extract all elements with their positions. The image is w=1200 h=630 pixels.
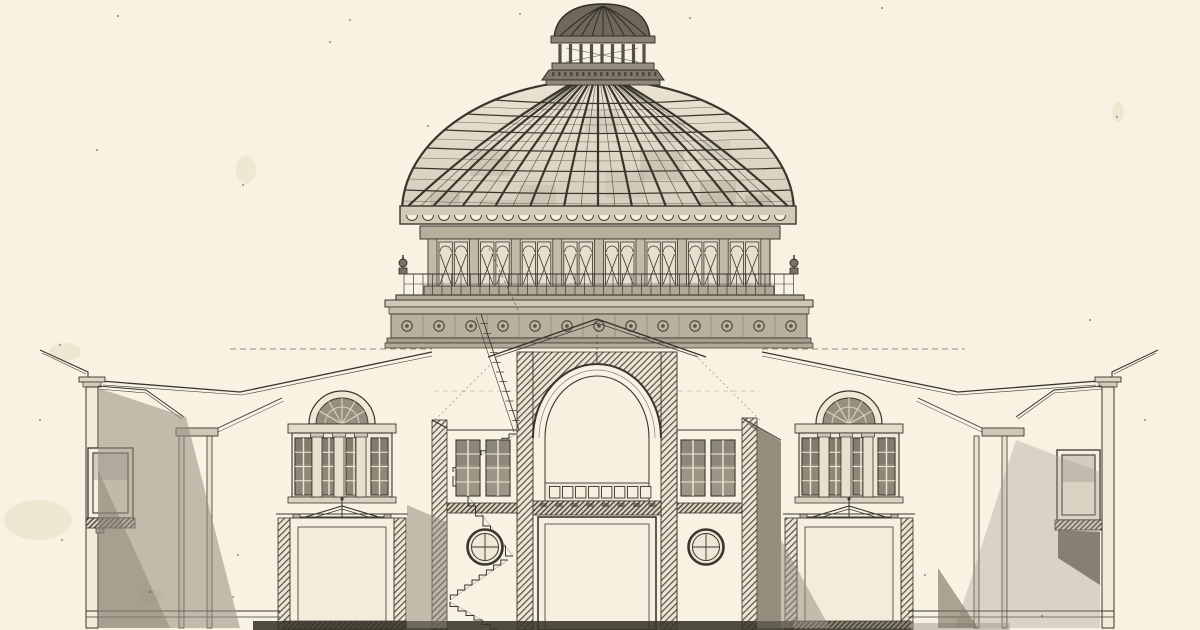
paper-speck <box>689 17 691 19</box>
paper-speck <box>1144 419 1146 421</box>
pilaster-capital <box>333 433 346 437</box>
drum-pilaster <box>470 239 479 291</box>
paper-speck <box>349 19 351 21</box>
drum-pilaster <box>636 239 645 291</box>
lantern-column <box>642 44 645 63</box>
cornice-base-edge <box>385 343 813 348</box>
paper-speck <box>1116 116 1118 118</box>
room-right-wall-section <box>394 518 406 630</box>
lantern-column <box>632 44 635 63</box>
paper-speck <box>924 574 926 576</box>
lantern-colonnade <box>558 44 645 63</box>
window-sash <box>486 440 510 496</box>
lintel-dentil <box>587 503 594 507</box>
paper-speck <box>232 596 234 598</box>
square-panel <box>615 487 625 499</box>
cornice-step <box>389 307 809 314</box>
pilaster-capital <box>311 433 324 437</box>
rosette-center <box>661 324 664 327</box>
lintel-dentil <box>649 503 656 507</box>
rosette-center <box>629 324 632 327</box>
mullion-pilaster <box>311 433 324 497</box>
paper-stain <box>4 500 72 540</box>
lantern-column <box>558 44 561 63</box>
gallery-beam <box>982 428 1024 436</box>
lantern-dentil <box>552 72 554 76</box>
drum-cornice <box>420 226 780 239</box>
urn-body <box>790 259 798 267</box>
room-wall-panel <box>298 527 386 623</box>
paper-speck <box>59 344 61 346</box>
rosette-center <box>533 324 536 327</box>
pilaster-capital <box>355 433 368 437</box>
lantern-dentil <box>606 72 608 76</box>
window-sash <box>681 440 705 496</box>
pilaster-shaft <box>863 433 873 497</box>
lantern-column <box>579 44 582 63</box>
foundation-dark-band <box>253 621 793 630</box>
lantern-column <box>621 44 624 63</box>
lantern-ring-molding <box>552 63 654 70</box>
rosette-center <box>405 324 408 327</box>
square-panel <box>589 487 599 499</box>
mullion-pilaster <box>818 433 831 497</box>
lintel-dentil <box>618 503 625 507</box>
architectural-section-engraving <box>0 0 1200 630</box>
paper-speck <box>881 7 883 9</box>
paper-speck <box>96 149 98 151</box>
urn-base <box>790 268 798 274</box>
pilaster-shaft <box>819 433 829 497</box>
urn-base <box>399 268 407 274</box>
lantern-dentil <box>654 72 656 76</box>
pilaster-shaft <box>841 433 851 497</box>
rosette-center <box>501 324 504 327</box>
pilaster-capital <box>818 433 831 437</box>
arch-opening <box>545 376 649 501</box>
drum-gallery <box>396 226 804 307</box>
paper-speck <box>149 591 151 593</box>
square-panel <box>641 487 651 499</box>
left-bay-shadow <box>407 505 447 628</box>
drawing-svg <box>0 0 1200 630</box>
lantern-column <box>590 44 593 63</box>
square-panel <box>628 487 638 499</box>
pilaster-shaft <box>334 433 344 497</box>
drum-pilaster <box>511 239 520 291</box>
paper-speck <box>329 41 331 43</box>
rosette-center <box>789 324 792 327</box>
mullion-pilaster <box>840 433 853 497</box>
lantern-base-step <box>546 80 660 85</box>
drum-pilaster <box>594 239 603 291</box>
lantern-dentil <box>618 72 620 76</box>
lantern-cap-ring <box>551 36 655 43</box>
window-sash <box>711 440 735 496</box>
drum-base-band <box>424 286 774 295</box>
outer-wall <box>1102 387 1114 628</box>
wall-cornice <box>79 377 105 382</box>
rosette-center <box>565 324 568 327</box>
window-sash <box>295 438 312 495</box>
paper-stain <box>1112 102 1124 122</box>
rosette-center <box>437 324 440 327</box>
lower-doorway <box>538 517 656 630</box>
arch-right-jamb-section <box>661 352 677 630</box>
wall-cornice <box>1095 377 1121 382</box>
lantern-column <box>600 44 603 63</box>
lantern-dentil <box>588 72 590 76</box>
lantern-dentil <box>642 72 644 76</box>
truss-finial <box>340 497 343 500</box>
lantern-dentil <box>564 72 566 76</box>
rosette-center <box>725 324 728 327</box>
rosette-center <box>597 324 600 327</box>
lantern-dentil <box>582 72 584 76</box>
lantern-column <box>569 44 572 63</box>
square-panel <box>550 487 560 499</box>
pilaster-shaft <box>312 433 322 497</box>
pilaster-shaft <box>356 433 366 497</box>
lantern-dentil <box>594 72 596 76</box>
porthole-window <box>689 530 724 565</box>
arch-left-jamb-section <box>517 352 533 630</box>
square-panel <box>563 487 573 499</box>
rosette-center <box>757 324 760 327</box>
lantern-dentil <box>570 72 572 76</box>
drum-pilaster <box>553 239 562 291</box>
right-bay-floor-section <box>677 503 742 513</box>
lintel-dentil <box>556 503 563 507</box>
urn-body <box>399 259 407 267</box>
stair-bay-floor-section <box>447 503 517 513</box>
paper-speck <box>39 419 41 421</box>
mullion-pilaster <box>862 433 875 497</box>
lantern-dentil <box>612 72 614 76</box>
lantern-column <box>611 44 614 63</box>
drum-pilaster <box>678 239 687 291</box>
lantern-dentil <box>600 72 602 76</box>
lantern-dentil <box>630 72 632 76</box>
pilaster-capital <box>862 433 875 437</box>
paper-speck <box>237 554 239 556</box>
paper-stain <box>236 156 256 184</box>
cornice-top-molding <box>385 300 813 307</box>
cornice-bottom-molding <box>387 338 811 343</box>
paper-speck <box>61 539 63 541</box>
right-bay-outer-wall <box>742 418 757 630</box>
room-right-wall-section <box>901 518 913 630</box>
lintel-dentil <box>571 503 578 507</box>
square-panel <box>576 487 586 499</box>
lantern-dentil <box>648 72 650 76</box>
pilaster-capital <box>840 433 853 437</box>
rosette-center <box>693 324 696 327</box>
lintel-section-band <box>533 501 661 515</box>
lantern-dentil <box>558 72 560 76</box>
window-entablature <box>795 424 903 433</box>
window-sash <box>878 438 895 495</box>
lantern-dentil <box>624 72 626 76</box>
lantern-dentil <box>576 72 578 76</box>
paper-speck <box>242 184 244 186</box>
lantern-dentil <box>636 72 638 76</box>
lintel-dentil <box>602 503 609 507</box>
lintel-dentil <box>633 503 640 507</box>
window-sash <box>802 438 819 495</box>
room-left-wall-section <box>278 518 290 630</box>
window-sash <box>371 438 388 495</box>
truss-finial <box>847 497 850 500</box>
mullion-pilaster <box>355 433 368 497</box>
paper-speck <box>427 125 429 127</box>
porthole-window <box>468 530 503 565</box>
window-entablature <box>288 424 396 433</box>
mullion-pilaster <box>333 433 346 497</box>
paper-speck <box>519 13 521 15</box>
square-panel <box>602 487 612 499</box>
window-sash <box>456 440 480 496</box>
lintel-dentil <box>540 503 547 507</box>
paper-speck <box>1041 615 1043 617</box>
rosette-center <box>469 324 472 327</box>
paper-speck <box>117 15 119 17</box>
paper-speck <box>1089 319 1091 321</box>
